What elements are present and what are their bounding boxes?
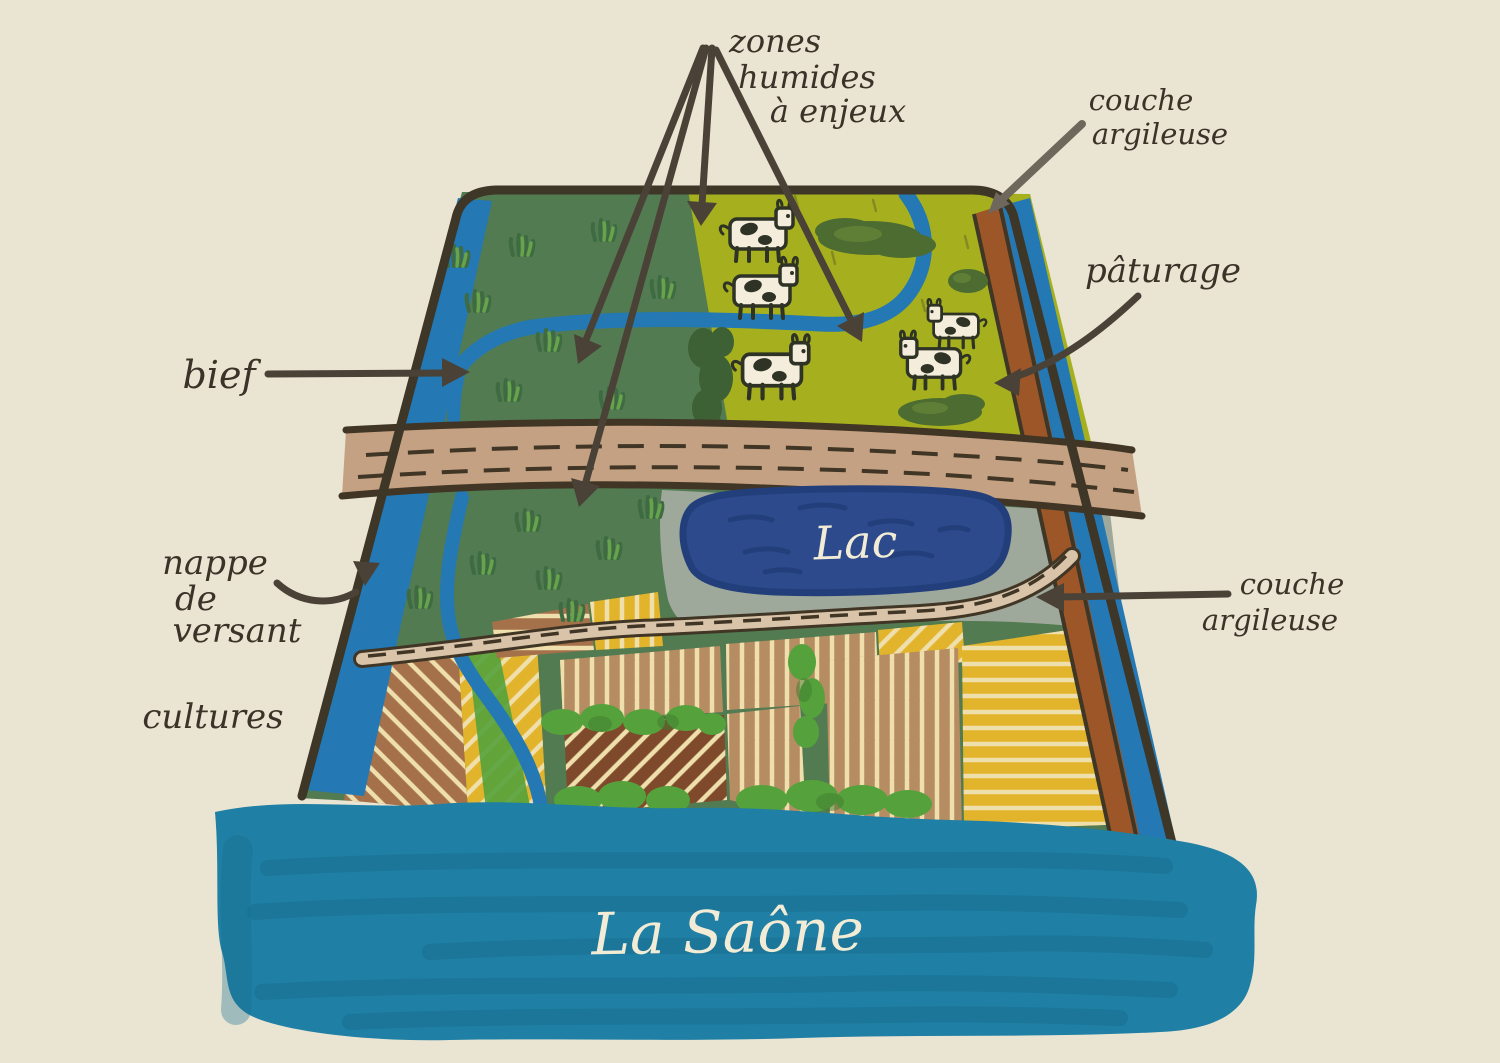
svg-text:humides: humides [738,58,876,96]
label-paturage: pâturage [1085,251,1241,291]
svg-text:versant: versant [173,611,302,651]
label-bief: bief [182,353,261,397]
label-la-saone: La Saône [590,896,865,969]
svg-text:couche: couche [1089,83,1193,117]
label-lac: Lac [812,514,899,571]
label-cultures: cultures [142,697,283,737]
lake: Lac [683,489,1008,593]
svg-text:couche: couche [1240,567,1344,601]
river-la-saone: La Saône [215,802,1257,1040]
illustration-canvas: Lac La Saône [0,0,1500,1063]
svg-text:nappe: nappe [162,543,268,583]
svg-text:argileuse: argileuse [1202,603,1338,637]
svg-text:zones: zones [728,22,821,60]
svg-text:à enjeux: à enjeux [770,92,906,130]
svg-text:argileuse: argileuse [1092,117,1228,151]
landscape-diagram: Lac La Saône [0,0,1500,1063]
